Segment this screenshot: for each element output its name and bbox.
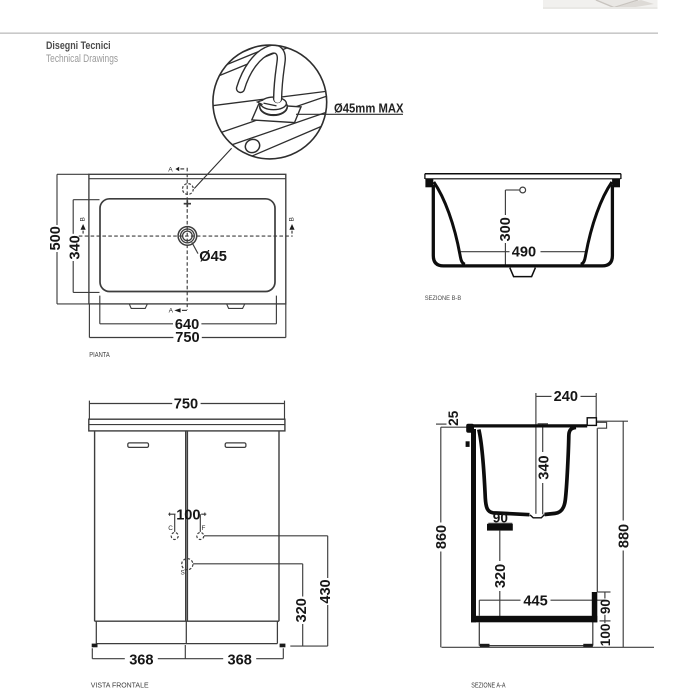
svg-text:368: 368 (129, 653, 153, 669)
svg-text:430: 430 (318, 579, 334, 603)
svg-text:B: B (80, 217, 87, 222)
svg-text:Ø45mm MAX: Ø45mm MAX (334, 102, 404, 116)
svg-text:340: 340 (536, 455, 552, 479)
svg-text:A: A (169, 308, 174, 315)
svg-text:A: A (168, 166, 173, 173)
svg-text:100: 100 (598, 624, 613, 647)
svg-text:445: 445 (523, 593, 547, 609)
svg-text:S: S (181, 570, 185, 577)
svg-text:Ø45: Ø45 (199, 249, 227, 265)
svg-text:90: 90 (493, 511, 508, 526)
svg-text:500: 500 (48, 226, 64, 250)
svg-text:750: 750 (175, 330, 199, 346)
svg-text:240: 240 (554, 389, 578, 405)
svg-text:25: 25 (446, 410, 461, 426)
svg-text:880: 880 (617, 524, 633, 548)
svg-text:PIANTA: PIANTA (89, 352, 110, 359)
svg-text:368: 368 (228, 653, 252, 669)
svg-text:860: 860 (434, 525, 450, 549)
svg-text:C: C (168, 525, 173, 532)
svg-text:490: 490 (512, 244, 536, 260)
svg-text:90: 90 (598, 599, 613, 614)
svg-text:SEZIONE B-B: SEZIONE B-B (425, 295, 462, 302)
svg-text:B: B (289, 217, 296, 222)
svg-text:300: 300 (498, 217, 514, 241)
svg-text:100: 100 (176, 507, 200, 523)
svg-text:320: 320 (493, 564, 509, 588)
svg-text:320: 320 (294, 598, 310, 622)
svg-text:340: 340 (67, 235, 83, 259)
svg-text:SEZIONE A-A: SEZIONE A-A (471, 683, 506, 690)
svg-text:F: F (202, 525, 206, 532)
svg-text:VISTA FRONTALE: VISTA FRONTALE (91, 683, 149, 690)
svg-text:750: 750 (174, 397, 198, 413)
